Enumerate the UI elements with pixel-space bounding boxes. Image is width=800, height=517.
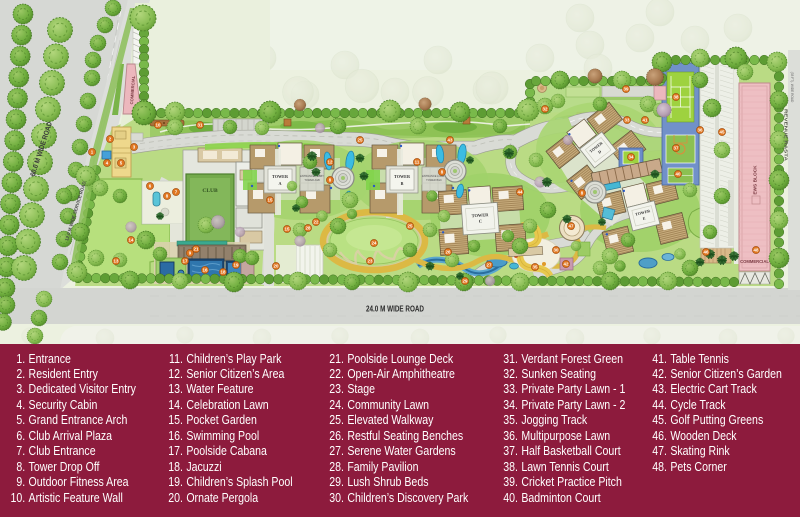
svg-text:EWS BLOCK: EWS BLOCK (753, 165, 759, 195)
svg-text:32: 32 (543, 107, 548, 112)
svg-text:35: 35 (533, 265, 538, 270)
svg-text:20: 20 (274, 264, 279, 269)
svg-text:48: 48 (754, 248, 759, 253)
svg-text:TOWER B&C: TOWER B&C (426, 178, 442, 182)
svg-text:TOWER: TOWER (272, 174, 289, 179)
svg-text:33: 33 (625, 118, 630, 123)
svg-text:24: 24 (372, 241, 377, 246)
svg-text:TOWER A&B: TOWER A&B (304, 178, 320, 182)
svg-text:ENTRANCE LOBBY: ENTRANCE LOBBY (300, 174, 324, 178)
svg-text:12: 12 (328, 160, 333, 165)
svg-text:13: 13 (114, 259, 119, 264)
svg-text:39: 39 (624, 87, 629, 92)
svg-text:26: 26 (446, 250, 451, 255)
svg-text:29: 29 (463, 279, 468, 284)
svg-text:34: 34 (629, 155, 634, 160)
svg-text:47: 47 (569, 224, 574, 229)
svg-text:31: 31 (198, 123, 203, 128)
svg-text:37: 37 (674, 146, 679, 151)
svg-text:10: 10 (156, 123, 161, 128)
svg-text:CLUB: CLUB (202, 188, 218, 194)
svg-text:B: B (401, 181, 404, 186)
svg-text:38: 38 (674, 95, 679, 100)
svg-text:22: 22 (314, 220, 319, 225)
svg-text:19: 19 (234, 263, 239, 268)
svg-text:36: 36 (698, 128, 703, 133)
svg-text:COMMERCIAL: COMMERCIAL (740, 259, 769, 264)
svg-text:41: 41 (643, 118, 648, 123)
svg-text:25: 25 (408, 224, 413, 229)
svg-text:REVENUE RASTA: REVENUE RASTA (784, 109, 789, 161)
svg-text:21: 21 (194, 247, 199, 252)
svg-text:15: 15 (285, 227, 290, 232)
svg-text:11: 11 (415, 160, 420, 165)
svg-text:42: 42 (564, 262, 569, 267)
svg-text:28: 28 (306, 226, 311, 231)
svg-text:27: 27 (487, 263, 492, 268)
svg-text:15: 15 (268, 198, 273, 203)
svg-text:40: 40 (676, 172, 681, 177)
svg-text:C: C (479, 219, 483, 224)
svg-text:25: 25 (358, 138, 363, 143)
svg-text:45: 45 (720, 130, 725, 135)
svg-text:30: 30 (554, 248, 559, 253)
svg-text:23: 23 (368, 259, 373, 264)
svg-text:43: 43 (448, 138, 453, 143)
svg-text:TOWER: TOWER (394, 174, 411, 179)
svg-text:16: 16 (203, 268, 208, 273)
svg-text:18: 18 (221, 270, 226, 275)
svg-text:24.0 M WIDE ROAD: 24.0 M WIDE ROAD (366, 305, 424, 314)
svg-text:17: 17 (183, 259, 188, 264)
svg-text:14: 14 (129, 238, 134, 243)
svg-text:(33 FT). WIDE ROAD: (33 FT). WIDE ROAD (790, 72, 794, 103)
svg-text:46: 46 (704, 250, 709, 255)
svg-text:A: A (278, 181, 281, 186)
svg-text:44: 44 (518, 190, 523, 195)
